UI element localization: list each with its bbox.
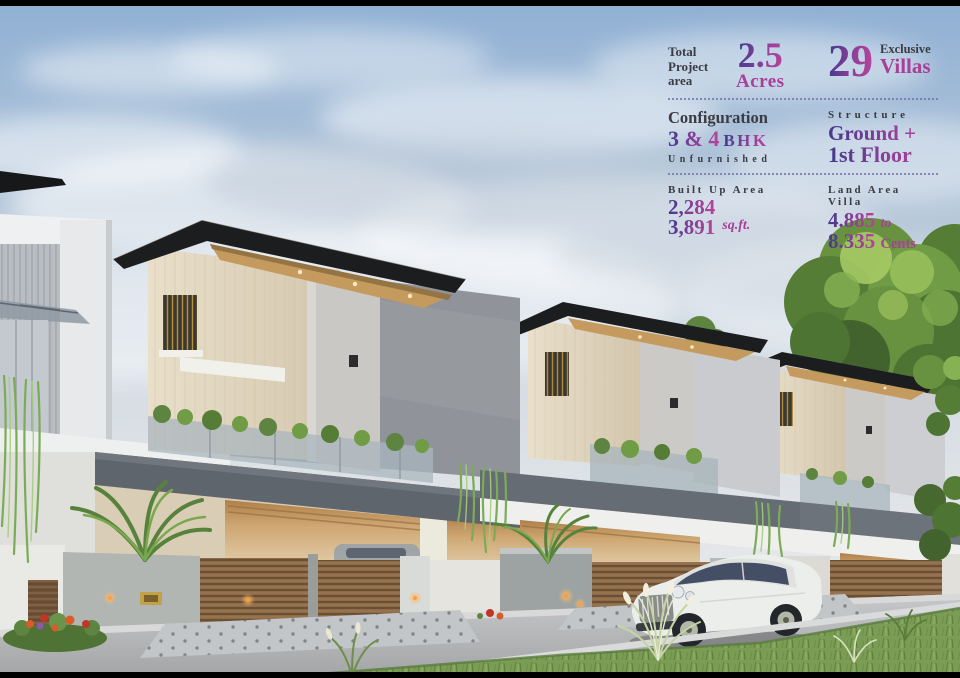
land-area-max: 8.335 [828, 229, 875, 253]
land-area-joiner: to [881, 216, 892, 231]
built-up-area: Built Up Area 2,284 3,891 sq.ft. [668, 184, 828, 251]
total-area-label: Total Project area [668, 40, 726, 89]
configuration-unit: BHK [723, 131, 768, 150]
exclusive-villas: 29 Exclusive Villas [828, 40, 938, 91]
land-area-label: Land Area Villa [828, 184, 938, 208]
configuration-label: Configuration [668, 109, 828, 126]
wall-fixture [670, 398, 678, 408]
villa-count-label-bottom: Villas [880, 56, 931, 77]
built-up-unit: sq.ft. [722, 218, 750, 234]
villa-3-pillar [845, 378, 885, 486]
neighbour-column [60, 220, 112, 468]
bottom-letterbox-bar [0, 672, 960, 678]
built-up-max: 3,891 [668, 218, 715, 238]
total-area-unit: Acres [736, 72, 785, 91]
structure-label: Structure [828, 109, 938, 121]
info-row-config-structure: Configuration 3 & 4BHK Unfurnished Struc… [668, 109, 938, 167]
wall-fixture [866, 426, 872, 434]
configuration-note: Unfurnished [668, 154, 828, 165]
dotted-separator [668, 173, 938, 175]
configuration: Configuration 3 & 4BHK Unfurnished [668, 109, 828, 167]
structure-line2: 1st Floor [828, 144, 938, 166]
top-letterbox-bar [0, 0, 960, 6]
land-area-villa: Land Area Villa 4.885 to 8.335 Cents [828, 184, 938, 251]
villa-project-hero: Total Project area 2.5 Acres 29 Exclusiv… [0, 0, 960, 678]
total-area-value: 2.5 [736, 40, 785, 71]
villa-count: 29 [828, 40, 873, 79]
wall-fixture [349, 355, 358, 367]
info-row-area-villas: Total Project area 2.5 Acres 29 Exclusiv… [668, 40, 938, 91]
total-project-area: Total Project area 2.5 Acres [668, 40, 828, 91]
project-info-panel: Total Project area 2.5 Acres 29 Exclusiv… [668, 40, 938, 252]
configuration-value: 3 & 4 [668, 126, 719, 151]
structure-line1: Ground + [828, 123, 938, 144]
structure: Structure Ground + 1st Floor [828, 109, 938, 167]
land-area-unit: Cents [881, 236, 916, 252]
info-row-builtup-land: Built Up Area 2,284 3,891 sq.ft. Land Ar… [668, 184, 938, 251]
dotted-separator [668, 98, 938, 100]
